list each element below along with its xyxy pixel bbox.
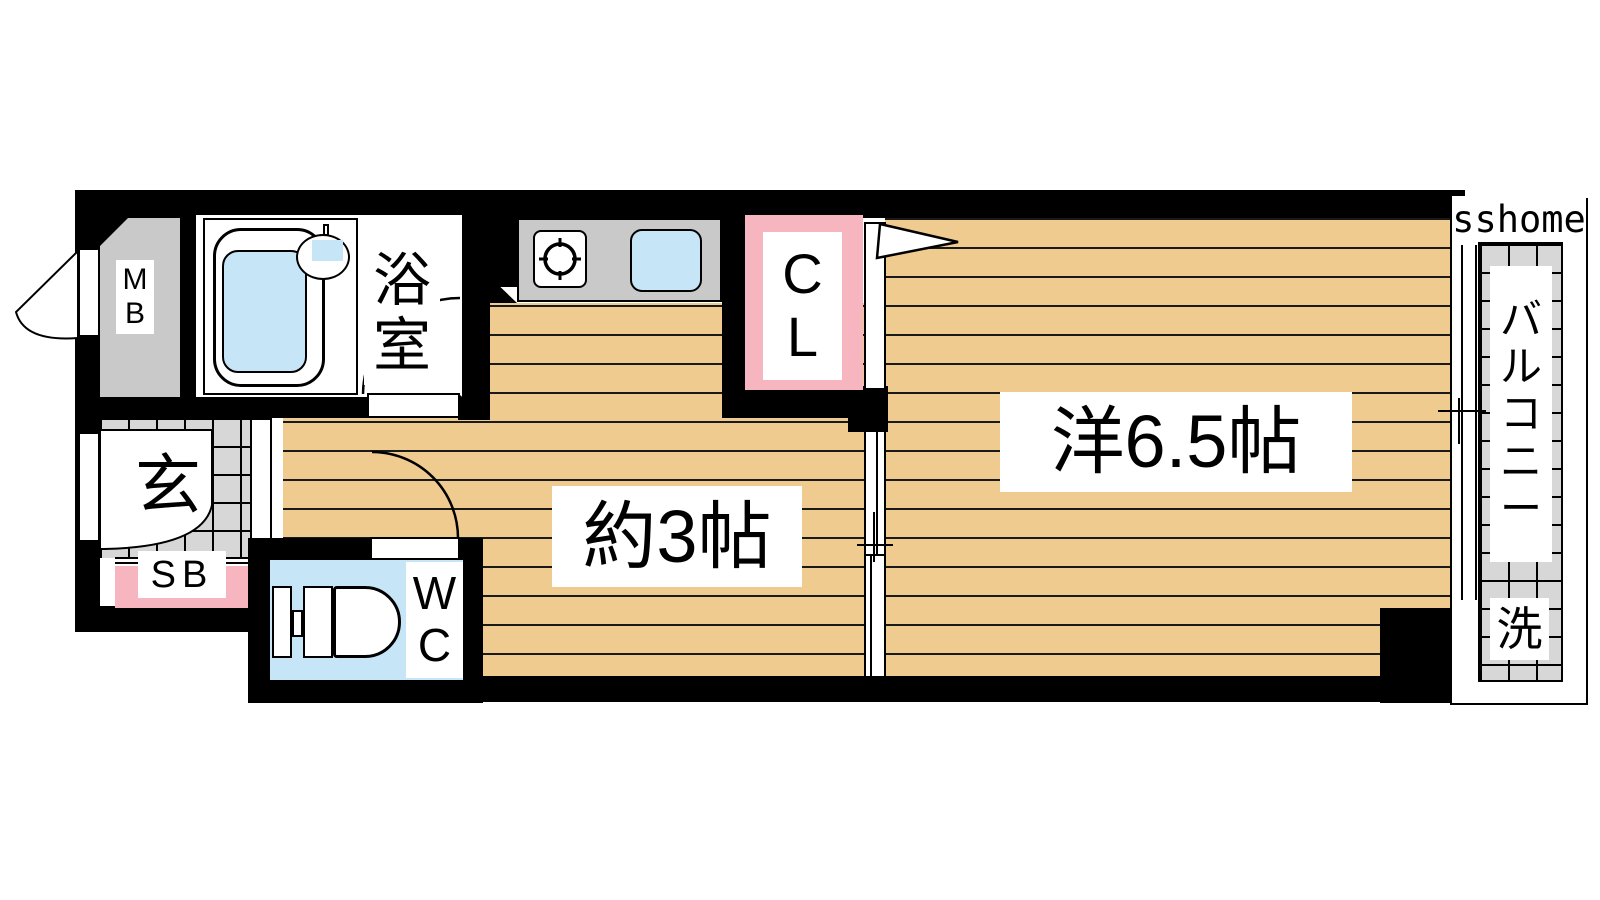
bathroom-door-opening <box>367 393 460 418</box>
kitchen-sink <box>630 229 702 292</box>
watermark-sshome: sshome <box>1452 196 1586 242</box>
balcony-label: バルコニー <box>1490 266 1552 562</box>
meter-box-door-swing <box>16 251 78 338</box>
window-handle-tick-v <box>1458 398 1460 444</box>
bathtub-water <box>222 250 307 373</box>
meter-box-label: MB <box>116 260 154 334</box>
laundry-label: 洗 <box>1490 598 1549 660</box>
sliding-door-meeting-tick <box>873 512 875 562</box>
wall-kitchen-left-b <box>490 190 517 287</box>
bathroom-label: 浴室 <box>364 243 440 385</box>
shower-faucet-water <box>312 240 343 261</box>
sliding-door-lower-panel <box>864 554 886 678</box>
wall-mb-bathroom-divider <box>178 215 198 397</box>
sliding-door-upper-panel <box>864 430 886 556</box>
western-room-label: 洋6.5帖 <box>1000 392 1352 492</box>
window-handle-tick-h <box>1438 410 1486 412</box>
toilet-seat-back <box>303 586 333 658</box>
wall-under-shoebox <box>77 606 250 632</box>
window-line-inner <box>1475 245 1477 600</box>
wc-door-leaf <box>370 537 460 560</box>
wall-kitchen-closet-divider <box>722 190 746 415</box>
wall-door-block <box>848 386 888 432</box>
wall-kitchen-left-a <box>458 190 490 420</box>
entrance-door-leaf <box>78 432 100 542</box>
window-line-outer <box>1461 245 1463 600</box>
wc-label: WC <box>406 562 463 678</box>
sliding-door-lower-line <box>870 556 872 676</box>
meter-box-door-leaf <box>78 248 100 337</box>
room-door-leaf <box>864 222 886 390</box>
sliding-door-upper-line <box>876 432 878 554</box>
entrance-label: 玄 <box>128 444 208 526</box>
toilet-tank <box>272 586 292 658</box>
stove <box>533 230 587 288</box>
hallway-kitchen-label: 約3帖 <box>552 486 802 587</box>
sliding-door-meeting-line <box>857 544 893 546</box>
floor-plan: sshome MB 浴室 CL 玄 SB WC 約3帖 洋6.5帖 バルコニー … <box>0 0 1600 900</box>
wall-bottom <box>460 676 1385 702</box>
toilet-flush-knob <box>292 610 303 637</box>
shoebox-label: SB <box>138 551 226 598</box>
entrance-step <box>250 418 272 540</box>
wall-top <box>75 190 1465 218</box>
closet-label: CL <box>763 232 842 380</box>
faucet-stem <box>323 224 329 236</box>
